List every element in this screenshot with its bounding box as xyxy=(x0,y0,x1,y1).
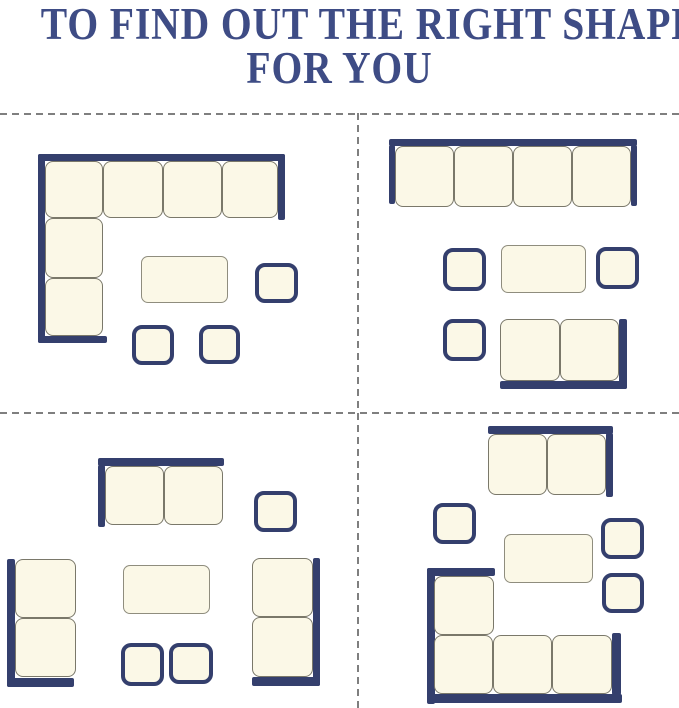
sofa-seat xyxy=(552,635,612,694)
side-table xyxy=(602,573,644,613)
sofa-seat xyxy=(493,635,552,694)
divider-vertical-center xyxy=(357,113,359,708)
layout-sectional-with-loveseat-set xyxy=(0,0,679,708)
ottoman xyxy=(433,503,476,544)
divider-horizontal-top xyxy=(0,113,679,115)
side-table xyxy=(601,518,644,559)
sectional-arm-right-bar xyxy=(612,633,621,695)
loveseat-seat xyxy=(547,434,606,495)
coffee-table xyxy=(504,534,593,583)
loveseat-arm-right-bar xyxy=(606,433,613,497)
furniture-shape-guide: TO FIND OUT THE RIGHT SHAPE FOR YOU xyxy=(0,0,679,708)
loveseat-back-top-bar xyxy=(488,426,613,434)
sofa-seat xyxy=(434,576,494,635)
loveseat-seat xyxy=(488,434,547,495)
sectional-back-bottom-bar xyxy=(427,694,622,703)
divider-horizontal-middle xyxy=(0,412,679,414)
sofa-seat xyxy=(434,635,493,694)
sectional-back-top-bar xyxy=(427,568,495,576)
